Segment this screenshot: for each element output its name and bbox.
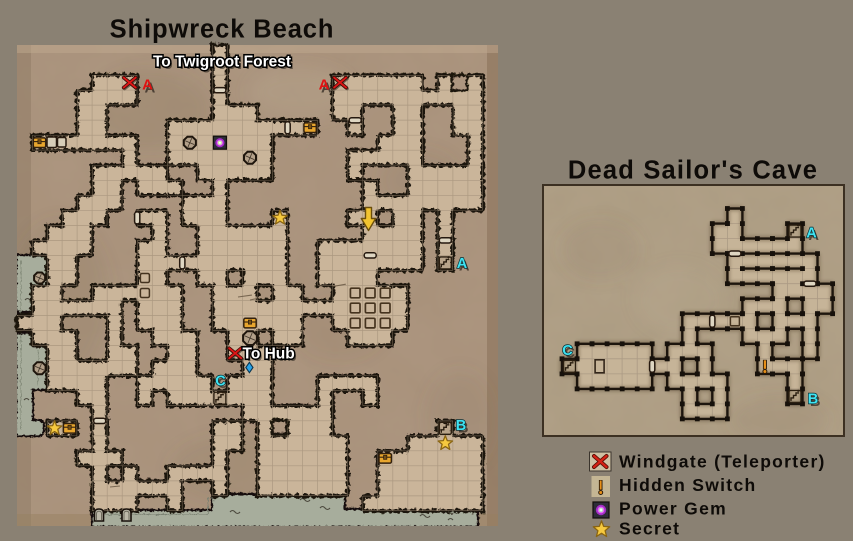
svg-text:A: A (457, 256, 468, 272)
svg-text:A: A (142, 77, 153, 94)
svg-text:A: A (319, 77, 330, 94)
svg-text:Hidden Switch: Hidden Switch (619, 475, 756, 495)
svg-text:Windgate (Teleporter): Windgate (Teleporter) (619, 452, 826, 472)
svg-text:C: C (215, 374, 226, 390)
svg-text:B: B (808, 392, 818, 408)
svg-text:B: B (456, 418, 466, 434)
svg-text:To Hub: To Hub (243, 346, 295, 363)
svg-text:Shipwreck Beach: Shipwreck Beach (110, 16, 335, 44)
svg-text:To Twigroot Forest: To Twigroot Forest (153, 54, 291, 71)
svg-text:Secret: Secret (619, 519, 680, 539)
svg-text:C: C (562, 343, 573, 359)
svg-text:Power Gem: Power Gem (619, 499, 727, 519)
svg-text:A: A (806, 226, 817, 242)
svg-text:Dead Sailor's Cave: Dead Sailor's Cave (568, 157, 818, 185)
